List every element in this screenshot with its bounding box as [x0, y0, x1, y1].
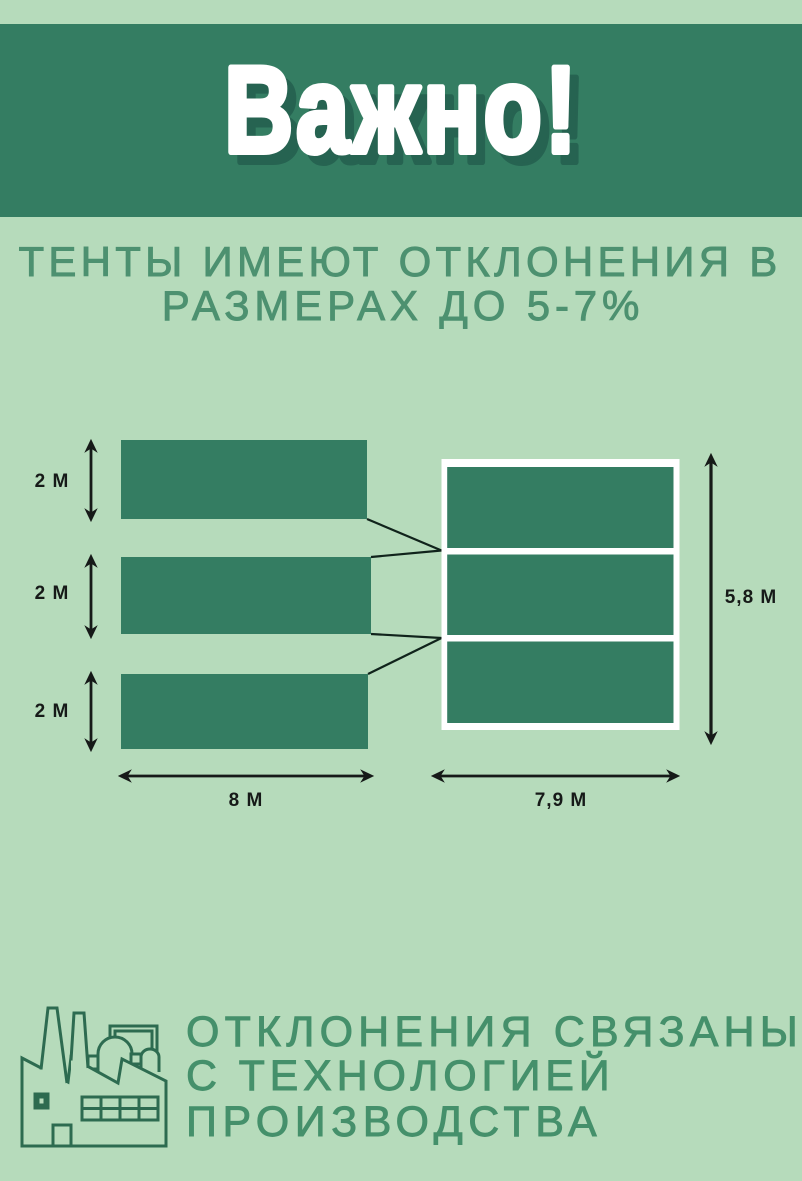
svg-text:С ТЕХНОЛОГИЕЙ: С ТЕХНОЛОГИЕЙ [186, 1051, 615, 1100]
svg-text:ОТКЛОНЕНИЯ СВЯЗАНЫ: ОТКЛОНЕНИЯ СВЯЗАНЫ [186, 1008, 802, 1056]
svg-text:РАЗМЕРАХ ДО 5-7%: РАЗМЕРАХ ДО 5-7% [162, 282, 644, 329]
svg-text:2 М: 2 М [35, 583, 70, 604]
svg-text:ТЕНТЫ ИМЕЮТ ОТКЛОНЕНИЯ В: ТЕНТЫ ИМЕЮТ ОТКЛОНЕНИЯ В [19, 238, 782, 285]
svg-text:5,8 М: 5,8 М [725, 587, 778, 608]
svg-text:2 М: 2 М [35, 701, 70, 722]
svg-text:ПРОИЗВОДСТВА: ПРОИЗВОДСТВА [186, 1098, 602, 1146]
svg-text:2 М: 2 М [35, 471, 70, 492]
svg-text:8 М: 8 М [229, 790, 264, 811]
svg-text:Важно!: Важно! [224, 41, 580, 178]
svg-text:7,9 М: 7,9 М [535, 790, 588, 811]
